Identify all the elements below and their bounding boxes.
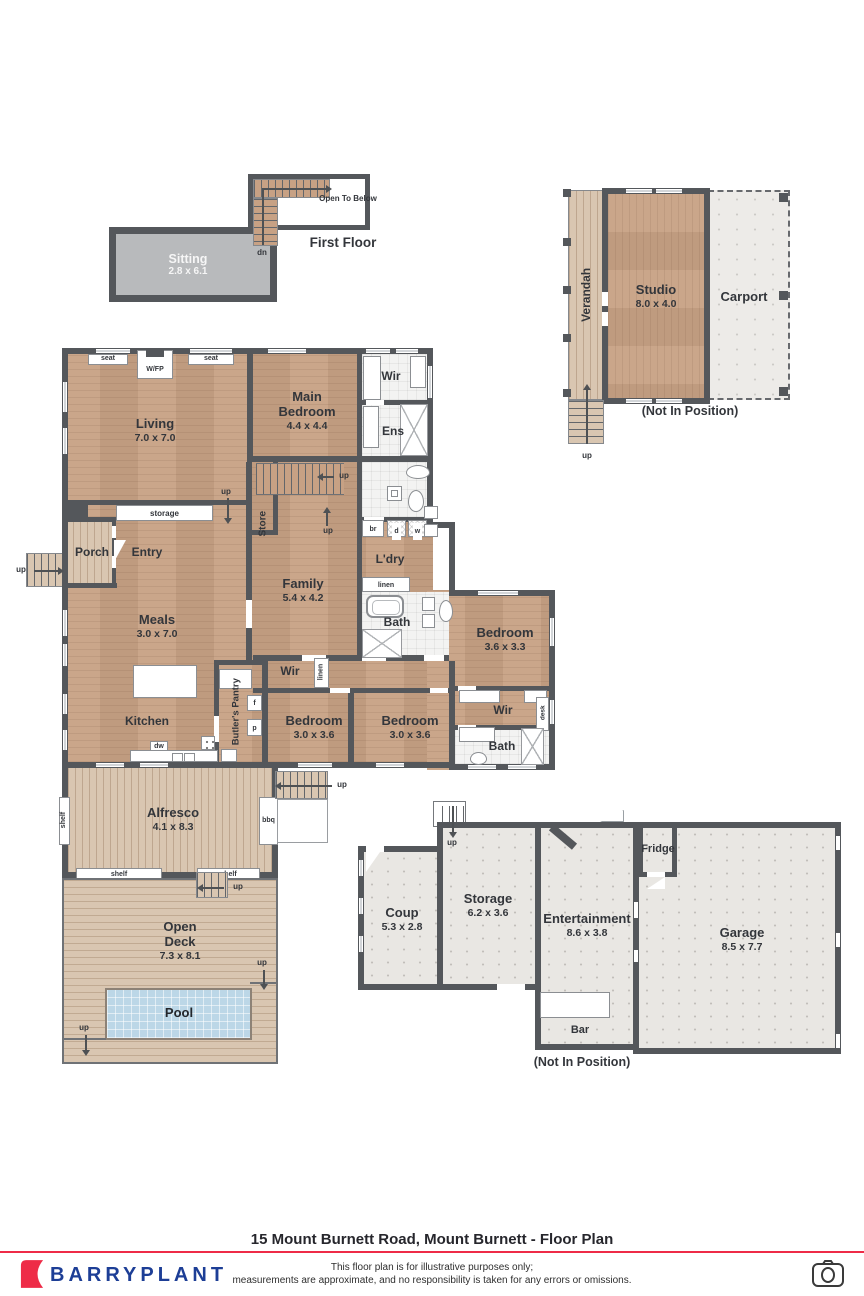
window (626, 189, 652, 193)
bbq-label: bbq (259, 817, 278, 825)
up-label: up (442, 838, 462, 847)
window (508, 765, 536, 769)
up-label: up (74, 1023, 94, 1032)
kitchen-label: Kitchen (107, 715, 187, 729)
door-opening (602, 292, 608, 306)
disclaimer-line2: measurements are approximate, and no res… (216, 1274, 648, 1287)
stairs (253, 198, 278, 246)
floor-plan-canvas: dn Open To Below First Floor Sitting 2.8… (0, 0, 864, 1296)
bar-label: Bar (558, 1024, 602, 1037)
wall-segment (549, 590, 555, 770)
down-arrow-icon (260, 984, 268, 990)
door-opening (634, 950, 638, 962)
accent-divider (0, 1251, 864, 1253)
wall-segment (214, 660, 267, 665)
window (656, 399, 682, 403)
broom-cupboard: br (362, 520, 384, 537)
cupboard-arrow-line (227, 498, 229, 520)
room-studio-label: Studio 8.0 x 4.0 (616, 283, 696, 310)
ens-label: Ens (375, 425, 411, 439)
wall-segment (437, 984, 541, 990)
carport-label: Carport (704, 290, 784, 305)
window (268, 349, 306, 353)
not-in-position-label: (Not In Position) (512, 1055, 652, 1069)
window (63, 428, 67, 454)
seat-box: seat (188, 354, 234, 365)
drain (391, 490, 398, 497)
post (779, 193, 788, 202)
camera-icon (810, 1259, 846, 1289)
door-opening (430, 688, 448, 693)
room-bedroom-a-label: Bedroom3.6 x 3.3 (465, 626, 545, 653)
window (359, 860, 363, 876)
bar-counter (540, 992, 610, 1018)
sink (184, 753, 195, 762)
up-label: up (12, 565, 30, 574)
porch-label: Porch (67, 546, 117, 560)
door-opening (424, 655, 444, 661)
door-opening (366, 400, 384, 405)
window (656, 189, 682, 193)
bathtub-inner (372, 600, 400, 615)
window (376, 763, 404, 767)
window (359, 936, 363, 952)
door-swing (600, 810, 624, 822)
up-label: up (334, 471, 354, 480)
wall-segment (535, 822, 841, 828)
toilet (406, 465, 430, 479)
up-label: up (318, 526, 338, 535)
up-arrow-icon (583, 384, 591, 390)
up-label: up (228, 882, 248, 891)
wfp-label: W/FP (137, 366, 173, 374)
page-title: 15 Mount Burnett Road, Mount Burnett - F… (0, 1231, 864, 1248)
barry-plant-logo-icon (20, 1259, 44, 1289)
wall-segment (253, 655, 449, 661)
wardrobe-shelf (410, 356, 426, 388)
right-arrow-icon (326, 185, 332, 193)
disclaimer-text: This floor plan is for illustrative purp… (216, 1261, 648, 1287)
wir-label: Wir (373, 370, 409, 384)
room-family-label: Family5.4 x 4.2 (263, 577, 343, 604)
post (563, 189, 571, 197)
door-opening (330, 688, 350, 693)
door-opening (497, 984, 525, 990)
kitchen-island (133, 665, 197, 698)
left-arrow-icon (275, 782, 281, 790)
window (366, 349, 390, 353)
toilet (470, 752, 487, 765)
open-to-below-label: Open To Below (316, 194, 380, 204)
door-opening (836, 1034, 840, 1048)
window (190, 349, 232, 353)
door-opening (366, 846, 384, 852)
room-bedroom-b-label: Bedroom3.0 x 3.6 (274, 714, 354, 741)
room-living-label: Living7.0 x 7.0 (115, 417, 195, 444)
step-arrow-line (263, 970, 265, 984)
storage-cupboard-label: storage (116, 509, 213, 518)
window (63, 382, 67, 412)
butlers-pantry-label: Butler's Pantry (230, 672, 241, 752)
wir-label: Wir (481, 704, 525, 718)
door-opening (246, 600, 252, 628)
wall-segment (88, 517, 116, 522)
door-opening (647, 872, 665, 877)
window (468, 765, 496, 769)
store-label: Store (257, 502, 269, 546)
linen-cupboard: linen (362, 577, 410, 592)
dishwasher: dw (150, 741, 168, 751)
brand-wordmark: BARRYPLANT (50, 1264, 227, 1287)
shelf-label: shelf (60, 800, 68, 840)
room-coup-label: Coup5.3 x 2.8 (362, 906, 442, 933)
sink (172, 753, 183, 762)
up-label: up (577, 451, 597, 460)
stair-arrow-line (202, 887, 224, 889)
post (563, 286, 571, 294)
post (563, 334, 571, 342)
wall-segment (62, 583, 117, 588)
pool-label: Pool (149, 1006, 209, 1021)
window (550, 700, 554, 724)
window (63, 730, 67, 750)
up-label: up (332, 780, 352, 789)
window (63, 644, 67, 666)
room-storage-label: Storage6.2 x 3.6 (448, 892, 528, 919)
wall-segment (246, 462, 252, 665)
room-alfresco-label: Alfresco4.1 x 8.3 (133, 806, 213, 833)
stairs (256, 463, 344, 495)
window (63, 610, 67, 636)
not-in-position-label: (Not In Position) (620, 404, 760, 418)
vanity (424, 524, 438, 537)
window (396, 349, 418, 353)
up-arrow-icon (323, 507, 331, 513)
entry-label: Entry (122, 546, 172, 560)
wall-segment (449, 661, 455, 764)
left-arrow-icon (317, 473, 323, 481)
wir-label: Wir (268, 665, 312, 679)
camera-icon-shape (810, 1259, 846, 1289)
logo-pennant-shape (20, 1259, 44, 1289)
step-arrow-line (85, 1035, 87, 1050)
window (96, 349, 130, 353)
bath-label: Bath (372, 616, 422, 630)
up-label: up (216, 487, 236, 496)
dryer: d (387, 520, 406, 537)
window (550, 618, 554, 646)
pantry-box: p (247, 719, 262, 736)
stair-arrow-line (34, 570, 60, 572)
door-opening (836, 836, 840, 850)
stair-arrow-line (326, 512, 328, 526)
verandah-label: Verandah (580, 255, 594, 335)
room-bedroom-c-label: Bedroom3.0 x 3.6 (370, 714, 450, 741)
room-garage-label: Garage8.5 x 7.7 (702, 926, 782, 953)
wall-segment (357, 354, 362, 456)
room-entertainment-label: Entertainment8.6 x 3.8 (517, 912, 657, 939)
room-open-deck-label: Open Deck7.3 x 8.1 (150, 920, 210, 962)
fridge-box: f (247, 695, 262, 711)
deck-step-edge (62, 1038, 106, 1040)
vanity (424, 506, 438, 519)
wardrobe-shelf (459, 690, 500, 703)
disclaimer-line1: This floor plan is for illustrative purp… (216, 1261, 648, 1274)
dn-label: dn (250, 248, 274, 257)
left-arrow-icon (197, 884, 203, 892)
door-opening (602, 312, 608, 326)
ldry-label: L'dry (365, 553, 415, 567)
window (298, 763, 332, 767)
window (478, 591, 518, 595)
stair-arrow-line (262, 188, 326, 190)
door-opening (836, 933, 840, 947)
room-sitting-label: Sitting 2.8 x 6.1 (148, 252, 228, 278)
room-main-bedroom-label: Main Bedroom4.4 x 4.4 (262, 390, 352, 432)
post (563, 238, 571, 246)
post (563, 389, 571, 397)
wall-segment (449, 528, 455, 596)
toilet (439, 600, 453, 622)
bath-label: Bath (477, 740, 527, 754)
wall-segment (358, 984, 443, 990)
vanity (422, 597, 435, 611)
linen-label: linen (317, 657, 325, 688)
stove (201, 736, 215, 750)
door-opening (112, 526, 116, 538)
down-arrow-icon (82, 1050, 90, 1056)
landing (277, 799, 328, 843)
wall-segment (247, 354, 253, 462)
seat-box: seat (88, 354, 128, 365)
up-label: up (252, 958, 272, 967)
room-meals-label: Meals3.0 x 7.0 (117, 613, 197, 640)
first-floor-label: First Floor (297, 235, 389, 251)
window (63, 694, 67, 714)
stair-arrow-line (586, 390, 588, 444)
shower-base (387, 486, 402, 501)
shower (362, 629, 402, 658)
window (428, 366, 432, 398)
wall-segment (633, 1048, 841, 1054)
wall-segment (62, 505, 88, 522)
window (140, 763, 168, 767)
fridge-label: Fridge (634, 843, 682, 856)
toilet (408, 490, 424, 512)
post (779, 387, 788, 396)
wall-segment (253, 456, 433, 462)
fireplace-hearth (146, 350, 164, 357)
stair-arrow-line (452, 806, 454, 834)
vanity (422, 614, 435, 628)
desk-label: desk (539, 698, 546, 728)
wall-segment (535, 1044, 639, 1050)
stair-arrow-line (281, 785, 332, 787)
stair-arrow-line (262, 189, 264, 245)
window (626, 399, 652, 403)
stair-arrow-line (322, 476, 334, 478)
down-arrow-icon (224, 518, 232, 524)
right-arrow-icon (58, 567, 64, 575)
window (96, 763, 124, 767)
